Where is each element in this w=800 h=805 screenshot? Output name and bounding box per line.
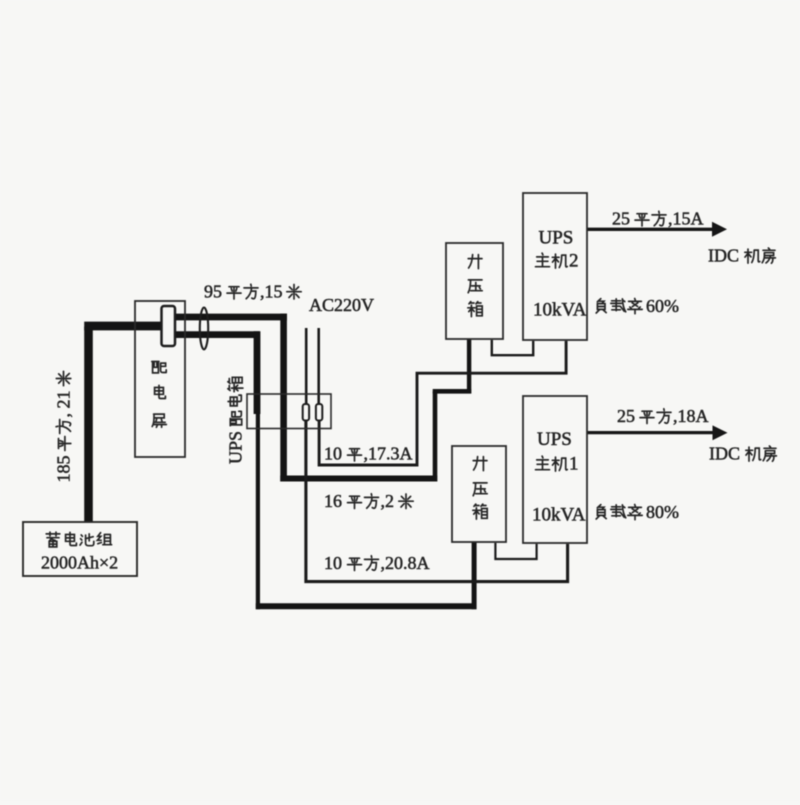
svg-text:UPS: UPS [539, 228, 574, 249]
svg-text:,15: ,15 [260, 282, 283, 302]
svg-text:185: 185 [54, 456, 74, 483]
svg-text:UPS: UPS [537, 429, 572, 450]
svg-text:80%: 80% [646, 502, 679, 522]
svg-text:25: 25 [612, 209, 630, 229]
svg-text:10kVA: 10kVA [533, 300, 587, 321]
svg-text:2000Ah×2: 2000Ah×2 [41, 553, 118, 573]
svg-text:10: 10 [324, 553, 342, 573]
svg-text:,15A: ,15A [668, 209, 704, 229]
svg-text:, 21: , 21 [54, 391, 74, 418]
svg-text:95: 95 [204, 282, 222, 302]
svg-text:UPS: UPS [226, 431, 246, 464]
svg-text:,18A: ,18A [673, 406, 709, 426]
svg-text:,2: ,2 [381, 491, 395, 511]
svg-text:10: 10 [324, 444, 342, 464]
svg-text:10kVA: 10kVA [532, 505, 586, 526]
svg-text:16: 16 [324, 491, 342, 511]
svg-text:60%: 60% [646, 296, 679, 316]
svg-text:IDC: IDC [709, 444, 740, 464]
svg-text:AC220V: AC220V [309, 295, 374, 315]
svg-text:,17.3A: ,17.3A [364, 444, 413, 464]
svg-text:IDC: IDC [708, 246, 739, 266]
svg-text:,20.8A: ,20.8A [381, 553, 430, 573]
svg-text:2: 2 [569, 251, 579, 272]
svg-text:1: 1 [569, 454, 579, 475]
svg-text:25: 25 [617, 406, 635, 426]
